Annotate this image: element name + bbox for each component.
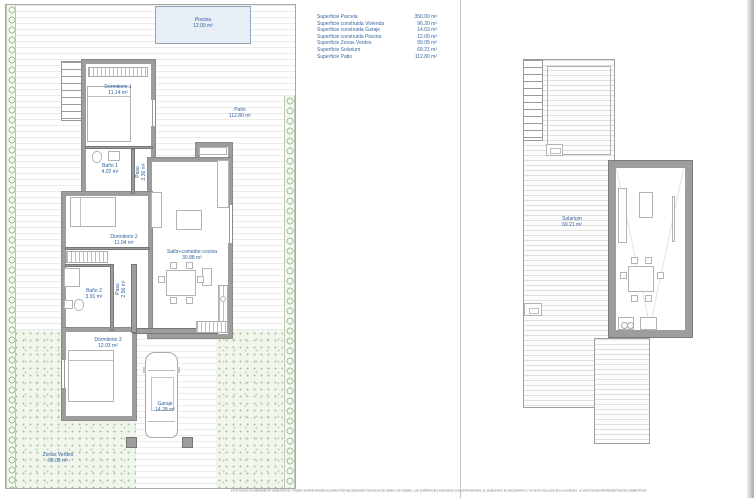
room-area: 11.14 m² (108, 90, 127, 96)
legend-label: Superficie Patio (317, 54, 352, 61)
room-area: 14.28 m² (155, 407, 175, 413)
legend-label: Superficie Parcela (317, 14, 358, 21)
room-area: 69.21 m² (562, 222, 582, 228)
dining-chair (158, 276, 165, 283)
bed3-pillow (69, 351, 113, 361)
zonas-area: 99.05 m² (48, 458, 68, 464)
room-label-dormitorio2: Dormitorio 2 11.04 m² (110, 234, 137, 246)
legend-value: 69.21 m² (417, 47, 437, 54)
solarium-chair (645, 257, 652, 264)
room-label-bano2: Baño 2 3.91 m² (86, 288, 103, 300)
roof-stair (523, 59, 543, 141)
room-label-paso2: Paso 2.56 m² (115, 281, 127, 298)
chimney-inner (550, 148, 561, 154)
room-area: 30.88 m² (182, 255, 202, 261)
partition-bed1-bath1 (85, 146, 153, 149)
solarium-chair (631, 257, 638, 264)
car-rear-line (148, 421, 175, 422)
page-edge-shadow (747, 0, 754, 498)
bed2-pillow (71, 198, 81, 226)
room-area: 2.36 m² (141, 164, 147, 181)
solarium-bench (618, 188, 627, 243)
legend-row: Superficie construida Garaje 14.63 m² (317, 27, 437, 34)
dining-chair (170, 297, 177, 304)
legend-row: Superficie Solarium 69.21 m² (317, 47, 437, 54)
pool-label: Piscina 12.00 m² (193, 17, 213, 29)
partition-bath2-paso (110, 264, 114, 331)
floor-plan-sheet: Piscina 12.00 m² (0, 0, 754, 498)
solarium-chair (620, 272, 627, 279)
solarium-chair (631, 295, 638, 302)
solarium-lounge-chair (639, 192, 653, 218)
legend-row: Superficie Patio 112.80 m² (317, 54, 437, 61)
bed-bedroom2 (70, 197, 116, 227)
solarium-counter (640, 317, 657, 330)
roof-vent-inner (529, 308, 539, 314)
zonas-verdes-label: Zonas Verdes 99.05 m² (43, 452, 74, 464)
legend-row: Superficie Parcela 350.00 m² (317, 14, 437, 21)
room-label-salon: Salón-comedor-cocina 30.88 m² (167, 249, 217, 261)
bed-bedroom3 (68, 350, 114, 402)
legend-row: Superficie construida Piscina 12.00 m² (317, 34, 437, 41)
window-bedroom3 (62, 360, 67, 388)
roof-vent (524, 303, 542, 316)
toilet-bath2 (74, 299, 84, 311)
legend-label: Superficie construida Garaje (317, 27, 380, 34)
shower-bath2 (64, 268, 80, 287)
dining-table (166, 270, 196, 296)
legend-label: Superficie construida Vivienda (317, 21, 384, 28)
surface-legend: Superficie Parcela 350.00 m² Superficie … (317, 14, 437, 60)
porch-column (126, 437, 137, 448)
legend-value: 112.80 m² (415, 54, 437, 61)
room-area: 12.03 m² (98, 343, 118, 349)
solarium-label: Solarium 69.21 m² (562, 216, 582, 228)
bbq-burner (627, 322, 634, 329)
legend-label: Superficie construida Piscina (317, 34, 381, 41)
coffee-table (176, 210, 202, 230)
solarium-side-counter (672, 196, 675, 242)
room-label-dormitorio3: Dormitorio 3 12.03 m² (94, 337, 121, 349)
room-label-garaje: Garaje 14.28 m² (155, 401, 175, 413)
dining-chair (186, 262, 193, 269)
roof-extension (594, 338, 650, 444)
sheet-divider-line (460, 0, 461, 498)
room-label-bano1: Baño 1 4.02 m² (102, 163, 119, 175)
sofa-left (151, 192, 162, 228)
hedge-right (284, 96, 295, 488)
solarium-chair (657, 272, 664, 279)
room-area: 4.02 m² (102, 169, 119, 175)
kitchen-counter-bottom (196, 321, 228, 333)
car-mirror (143, 367, 146, 373)
legend-row: Superficie construida Vivienda 96.20 m² (317, 21, 437, 28)
room-area: 2.56 m² (121, 281, 127, 298)
window-living-east (227, 205, 232, 243)
legend-value: 96.20 m² (417, 21, 437, 28)
dining-chair (170, 262, 177, 269)
patio-area: 112.80 m² (229, 113, 251, 119)
sink-bath2 (64, 300, 73, 309)
legend-label: Superficie Zonas Verdes (317, 40, 371, 47)
car-mirror (177, 367, 180, 373)
dining-chair (197, 276, 204, 283)
legend-value: 14.63 m² (417, 27, 437, 34)
footer-disclaimer: ESTE PLANO ES MERAMENTE ORIENTATIVO Y PO… (231, 489, 647, 492)
car (145, 352, 178, 438)
legend-value: 350.00 m² (414, 14, 437, 21)
sofa-right (217, 160, 229, 208)
room-area: 3.91 m² (86, 294, 103, 300)
wardrobe-bedroom1 (88, 67, 148, 77)
patio-label: Patio 112.80 m² (229, 107, 251, 119)
solarium-bbq (618, 317, 634, 330)
solarium-chair (645, 295, 652, 302)
legend-value: 12.00 m² (417, 34, 437, 41)
partition-dorm2 (65, 247, 150, 250)
partition-bath2-top (65, 264, 113, 267)
dining-chair (186, 297, 193, 304)
legend-row: Superficie Zonas Verdes 99.05 m² (317, 40, 437, 47)
toilet-bath1 (92, 151, 102, 163)
legend-label: Superficie Solarium (317, 47, 360, 54)
exterior-stair (61, 61, 82, 121)
partition-paso-living (131, 264, 137, 333)
car-windshield (148, 370, 175, 371)
window-bedroom1 (150, 100, 155, 126)
room-label-paso1: Paso 2.36 m² (135, 164, 147, 181)
room-area: 11.04 m² (114, 240, 133, 246)
sink-bath1 (108, 151, 120, 161)
tv-unit (199, 147, 227, 155)
kitchen-sink (220, 296, 226, 302)
roof-top-panel (547, 66, 611, 155)
hedge-left (6, 5, 16, 488)
legend-value: 99.05 m² (417, 40, 437, 47)
room-label-dormitorio1: Dormitorio 1 11.14 m² (104, 84, 131, 96)
pool-area: 12.00 m² (193, 23, 213, 29)
porch-column (182, 437, 193, 448)
chimney (546, 144, 563, 156)
wardrobe-bedroom2 (66, 251, 108, 263)
solarium-table (628, 266, 654, 292)
